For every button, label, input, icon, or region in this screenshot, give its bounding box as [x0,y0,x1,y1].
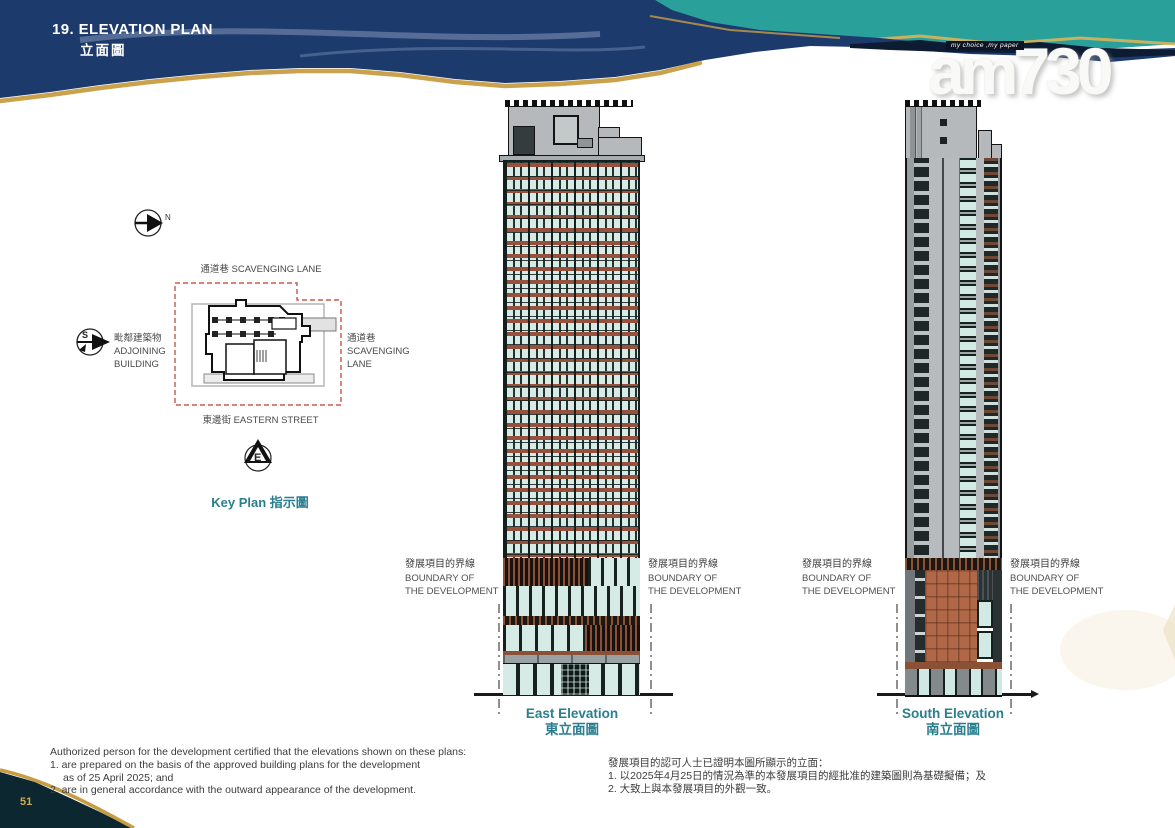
podium-edge [993,570,1002,662]
page-title: 19. ELEVATION PLAN [52,21,213,38]
scavenging-en2: LANE [347,358,410,371]
east-storefront [503,663,640,695]
podium-wall [905,570,915,662]
facade-window-column [914,158,929,558]
east-arrow-icon: E [238,436,278,474]
roof-stripe [917,107,922,159]
south-elevation-caption: South Elevation 南立面圖 [873,706,1033,738]
podium-windows [588,558,640,586]
podium-windows [503,625,585,651]
keyplan-label-scavenging-right: 通道巷 SCAVENGING LANE [347,332,410,371]
east-entrance [561,664,589,695]
south-label: S [82,330,88,340]
notes-english: Authorized person for the development ce… [50,746,520,797]
scavenging-en1: SCAVENGING [347,345,410,358]
ground-line-arrow [1031,690,1039,698]
podium-slats [585,625,640,651]
podium-slats [503,558,588,586]
podium-terracotta-panel [925,570,977,662]
facade-wall [929,158,960,558]
east-elevation-caption: East Elevation 東立面圖 [492,706,652,738]
paper-smudge-edge [1163,600,1175,666]
boundary-label-south-right: 發展項目的界線 BOUNDARY OF THE DEVELOPMENT [1010,558,1120,599]
notes-en-item1: 1. are prepared on the basis of the appr… [50,759,520,772]
page-number: 51 [20,796,32,808]
podium-window [977,600,993,628]
east-podium-lower [503,625,640,651]
notes-en-item1b: as of 25 April 2025; and [50,772,520,785]
penthouse-louvre [513,126,535,155]
facade-edge [998,158,1002,558]
room-2 [254,340,286,374]
page-title-zh: 立面圖 [80,39,127,59]
facade-wall-narrow [976,158,984,558]
roof-opening [940,119,947,126]
south-roof-structure [905,106,977,160]
south-elevation-drawing [905,100,1002,698]
podium-dark-column [915,570,925,662]
notes-en-intro: Authorized person for the development ce… [50,746,520,759]
south-podium [905,570,1002,662]
podium-louvre [977,570,993,600]
keyplan-caption: Key Plan 指示圖 [205,492,315,511]
boundary-label-east-right: 發展項目的界線 BOUNDARY OF THE DEVELOPMENT [648,558,758,599]
penthouse-window [553,115,579,145]
boundary-label-east-left: 發展項目的界線 BOUNDARY OF THE DEVELOPMENT [405,558,515,599]
boundary-line-south-right [1010,604,1012,714]
brochure-page: 19. ELEVATION PLAN 立面圖 my choice ,my pap… [0,0,1175,828]
notes-zh-intro: 發展項目的認可人士已證明本圖所顯示的立面： [608,757,1128,770]
south-arrow-icon: S [72,326,116,358]
keyplan-drawing [164,274,354,424]
notes-zh-item2: 2. 大致上與本發展項目的外觀一致。 [608,783,1128,796]
east-label: E [254,452,261,464]
boundary-line-east-left [498,604,500,714]
room-1 [226,344,254,374]
adjoining-en2: BUILDING [114,358,166,371]
adjoining-zh: 毗鄰建築物 [114,332,166,345]
adjoining-en1: ADJOINING [114,345,166,358]
east-canopy [503,655,640,663]
penthouse-vent [577,138,593,148]
masthead-tagline: my choice ,my paper [946,41,1024,50]
north-label: N [165,213,171,222]
east-roof-penthouse [508,106,600,157]
east-podium-upper [503,558,640,586]
south-podium-brown-band [905,662,1002,669]
room-3 [272,318,296,329]
south-storefront [905,669,1002,697]
notes-zh-item1: 1. 以2025年4月25日的情況為準的本發展項目的經批准的建築圖則為基礎擬備；… [608,770,1128,783]
east-podium-band [503,616,640,625]
boundary-label-south-left: 發展項目的界線 BOUNDARY OF THE DEVELOPMENT [802,558,912,599]
south-podium-band [905,558,1002,570]
roof-opening [940,137,947,144]
facade-glass-column [960,158,976,558]
boundary-line-east-right [650,604,652,714]
roof-stripe [910,107,916,159]
east-tower-facade [503,160,640,560]
east-elevation-drawing [503,100,640,698]
paper-smudge [1060,610,1175,690]
south-roof-step1 [978,130,992,160]
east-podium-window-row [503,586,640,616]
scavenging-zh: 通道巷 [347,332,410,345]
keyplan-label-adjoining: 毗鄰建築物 ADJOINING BUILDING [114,332,166,371]
east-roof-deck [598,137,642,157]
notes-chinese: 發展項目的認可人士已證明本圖所顯示的立面： 1. 以2025年4月25日的情況為… [608,757,1128,795]
south-tower-facade [905,158,1002,558]
notes-en-item2: 2. are in general accordance with the ou… [50,784,520,797]
podium-window [977,631,993,659]
north-arrow-icon: N [132,206,178,240]
boundary-line-south-left [896,604,898,714]
facade-column [905,158,914,558]
facade-banded-column [984,158,998,558]
keyplan-label-eastern-street: 東邊街 EASTERN STREET [188,414,333,427]
